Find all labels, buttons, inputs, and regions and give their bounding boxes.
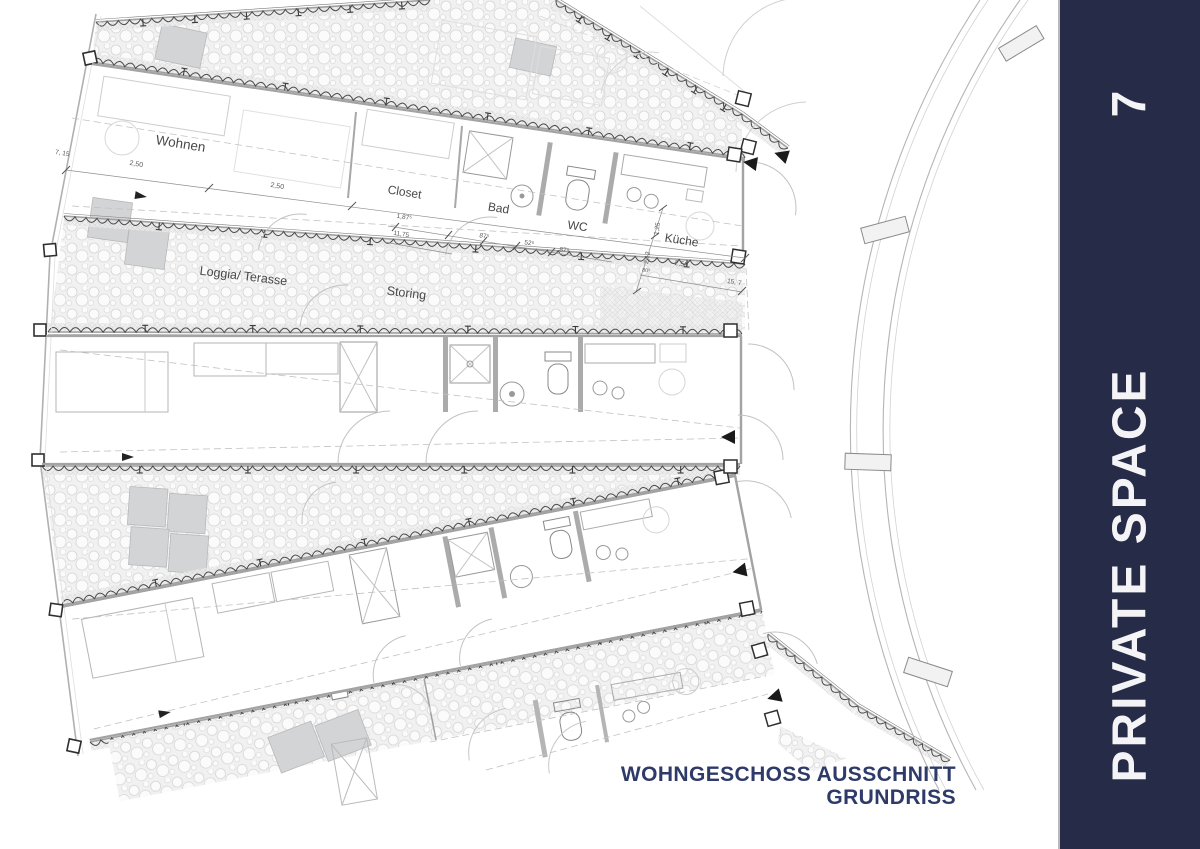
dimension-label: 52⁵: [524, 239, 535, 248]
dimension-label: 11,75: [393, 230, 410, 239]
gallery-ring: [845, 0, 1044, 790]
room-label-bad: Bad: [487, 199, 510, 216]
dimension-label: 1,25: [653, 222, 662, 236]
room-label-closet: Closet: [387, 182, 423, 201]
dimension-label: 2,50: [129, 160, 144, 169]
drawing-title-line1: WOHNGESCHOSS AUSSCHNITT: [621, 763, 956, 786]
floor-plan-drawing: WohnenClosetBadWCKücheLoggia/ TerasseSto…: [0, 0, 1060, 849]
dimension-label: 7, 15: [55, 149, 71, 158]
page-number: 7: [1103, 91, 1158, 118]
section-title: PRIVATE SPACE: [1103, 367, 1158, 782]
dimension-label: 1,87⁵: [396, 213, 413, 222]
drawing-title: WOHNGESCHOSS AUSSCHNITT GRUNDRISS: [621, 763, 956, 809]
room-label-kueche: Küche: [664, 230, 700, 249]
outer-boundary: [32, 14, 101, 756]
dimension-label: 80⁵: [642, 266, 651, 274]
dimension-label: 2,50: [270, 182, 285, 191]
gallery-bridge: [845, 26, 1044, 687]
toilet-icon: [545, 352, 571, 394]
sidebar: 7 PRIVATE SPACE: [1058, 0, 1200, 849]
toilet-icon: [561, 166, 595, 212]
toilet-icon: [543, 516, 576, 560]
room-label-wc: WC: [567, 218, 589, 235]
presentation-page: WohnenClosetBadWCKücheLoggia/ TerasseSto…: [0, 0, 1200, 849]
entry-arrow-icon: [731, 563, 747, 579]
room-label-wohnen: Wohnen: [155, 132, 207, 155]
drawing-title-line2: GRUNDRISS: [621, 786, 956, 809]
dimension-label: 87⁵: [479, 232, 490, 241]
